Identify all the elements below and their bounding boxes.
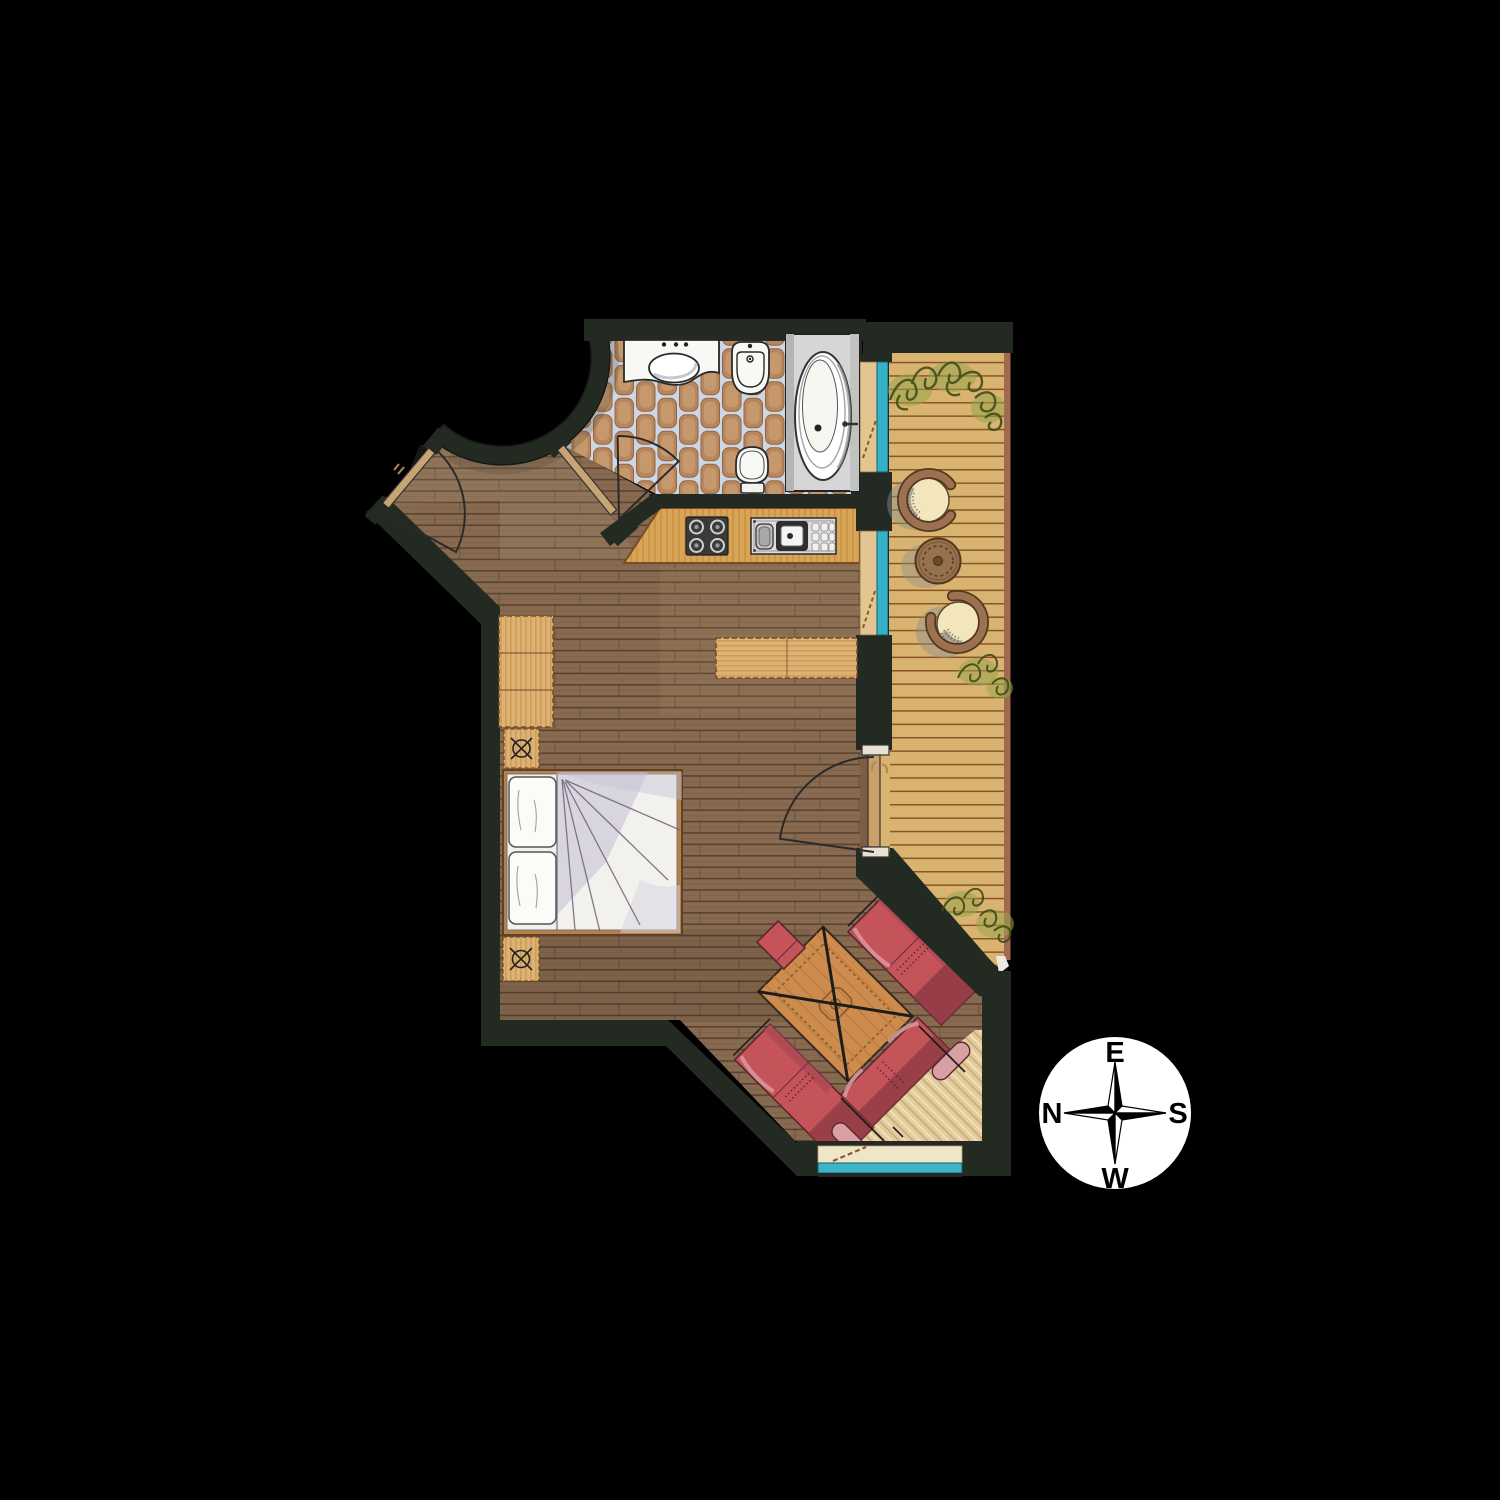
svg-text:S: S <box>1168 1098 1187 1130</box>
svg-text:N: N <box>1042 1098 1063 1130</box>
svg-text:E: E <box>1105 1037 1124 1069</box>
svg-text:W: W <box>1101 1163 1129 1195</box>
